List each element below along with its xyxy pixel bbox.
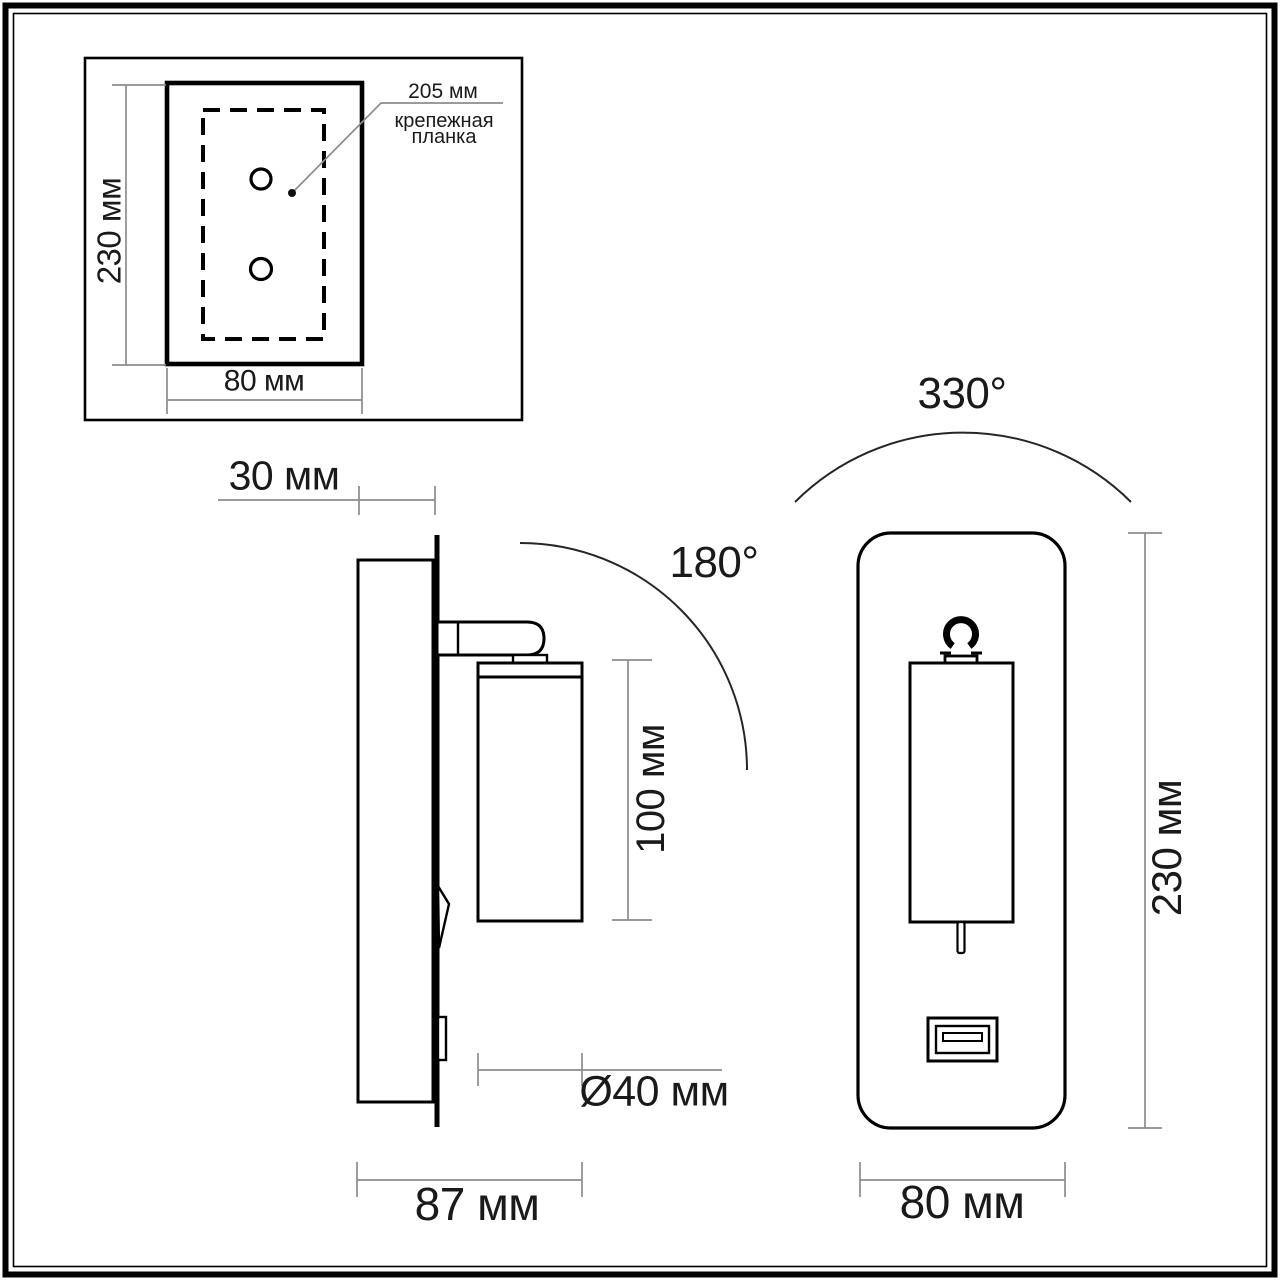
toggle-switch-side bbox=[438, 886, 449, 948]
toggle-switch-front bbox=[958, 922, 965, 953]
lamp-head-ring bbox=[947, 620, 976, 646]
lamp-diameter-label: Ø40 мм bbox=[579, 1069, 728, 1114]
lamp-length-label: 100 мм bbox=[630, 724, 672, 854]
mounting-hole-top bbox=[251, 169, 271, 189]
inset-height-label: 230 мм bbox=[93, 178, 128, 285]
front-height-label: 230 мм bbox=[1145, 780, 1189, 917]
lamp-body-front bbox=[910, 663, 1013, 922]
rotation-arc-330 bbox=[795, 433, 1131, 502]
backplate-outline bbox=[167, 83, 362, 364]
usb-port-front bbox=[928, 1018, 997, 1061]
side-depth-label: 30 мм bbox=[229, 454, 340, 497]
callout-name-label: крепежная планка bbox=[394, 113, 493, 145]
rotation-angle-label: 330° bbox=[917, 371, 1006, 417]
mounting-hole-bottom bbox=[251, 259, 272, 280]
swivel-arm bbox=[437, 622, 544, 655]
mounting-bar-dashed-outline bbox=[203, 110, 324, 339]
housing-box bbox=[358, 560, 433, 1102]
inset-width-label: 80 мм bbox=[224, 365, 304, 397]
lamp-cylinder bbox=[478, 663, 582, 921]
usb-port-side bbox=[438, 1017, 446, 1060]
callout-leader-dot bbox=[288, 189, 296, 197]
total-depth-label: 87 мм bbox=[415, 1180, 540, 1228]
callout-value-label: 205 мм bbox=[408, 81, 478, 103]
swivel-angle-label: 180° bbox=[669, 540, 758, 586]
technical-drawing: 205 мм крепежная планка 230 мм 80 мм 30 … bbox=[0, 0, 1280, 1280]
front-width-label: 80 мм bbox=[900, 1178, 1025, 1226]
front-view bbox=[795, 433, 1162, 1197]
